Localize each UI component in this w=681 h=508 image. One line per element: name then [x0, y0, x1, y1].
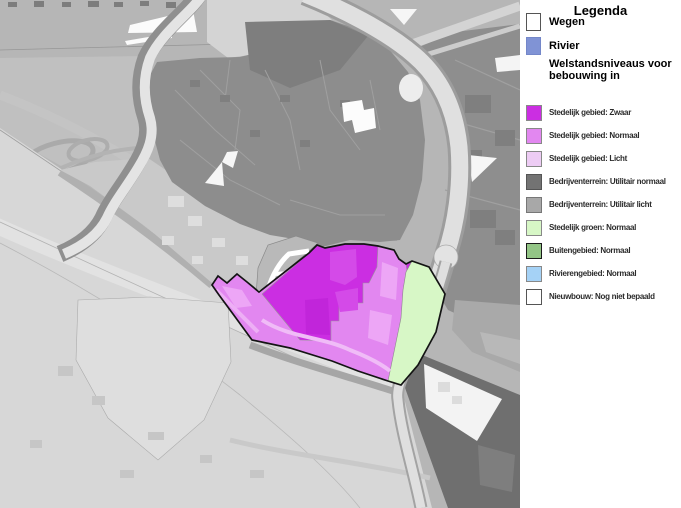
legend-swatch: [526, 128, 542, 144]
legend-top-items: Wegen Rivier: [526, 13, 585, 61]
legend-item-label: Rivierengebied: Normaal: [549, 269, 636, 278]
welstand-map-view: Legenda Wegen Rivier Welstandsniveaus vo…: [0, 0, 681, 508]
legend-item-bedrijven_normaal: Bedrijventerrein: Utilitair normaal: [526, 170, 666, 193]
map-canvas: [0, 0, 520, 508]
legend-item-wegen: Wegen: [526, 13, 585, 31]
legend-item-label: Bedrijventerrein: Utilitair licht: [549, 200, 652, 209]
legend-swatch: [526, 174, 542, 190]
legend-item-rivier: Rivier: [526, 37, 585, 55]
legend-swatch: [526, 105, 542, 121]
legend-item-label: Nieuwbouw: Nog niet bepaald: [549, 292, 655, 301]
legend-item-label: Rivier: [549, 40, 580, 52]
legend-swatch: [526, 220, 542, 236]
legend-swatch: [526, 151, 542, 167]
legend-item-label: Stedelijk gebied: Zwaar: [549, 108, 631, 117]
legend-item-rivierengebied: Rivierengebied: Normaal: [526, 262, 666, 285]
legend-panel: Legenda Wegen Rivier Welstandsniveaus vo…: [520, 0, 681, 508]
legend-swatch: [526, 243, 542, 259]
legend-items: Stedelijk gebied: Zwaar Stedelijk gebied…: [526, 101, 666, 308]
legend-item-buitengebied: Buitengebied: Normaal: [526, 239, 666, 262]
legend-item-label: Wegen: [549, 16, 585, 28]
legend-item-label: Stedelijk gebied: Licht: [549, 154, 627, 163]
legend-item-nieuwbouw: Nieuwbouw: Nog niet bepaald: [526, 285, 666, 308]
legend-section-header: Welstandsniveaus voor bebouwing in: [549, 59, 680, 82]
legend-item-label: Bedrijventerrein: Utilitair normaal: [549, 177, 666, 186]
legend-swatch: [526, 266, 542, 282]
legend-item-label: Stedelijk gebied: Normaal: [549, 131, 639, 140]
legend-swatch: [526, 289, 542, 305]
legend-item-label: Stedelijk groen: Normaal: [549, 223, 636, 232]
legend-item-bedrijven_licht: Bedrijventerrein: Utilitair licht: [526, 193, 666, 216]
legend-swatch: [526, 197, 542, 213]
legend-swatch: [526, 37, 541, 55]
legend-item-label: Buitengebied: Normaal: [549, 246, 630, 255]
legend-item-normaal: Stedelijk gebied: Normaal: [526, 124, 666, 147]
legend-swatch: [526, 13, 541, 31]
legend-item-licht: Stedelijk gebied: Licht: [526, 147, 666, 170]
legend-item-groen: Stedelijk groen: Normaal: [526, 216, 666, 239]
legend-item-zwaar: Stedelijk gebied: Zwaar: [526, 101, 666, 124]
